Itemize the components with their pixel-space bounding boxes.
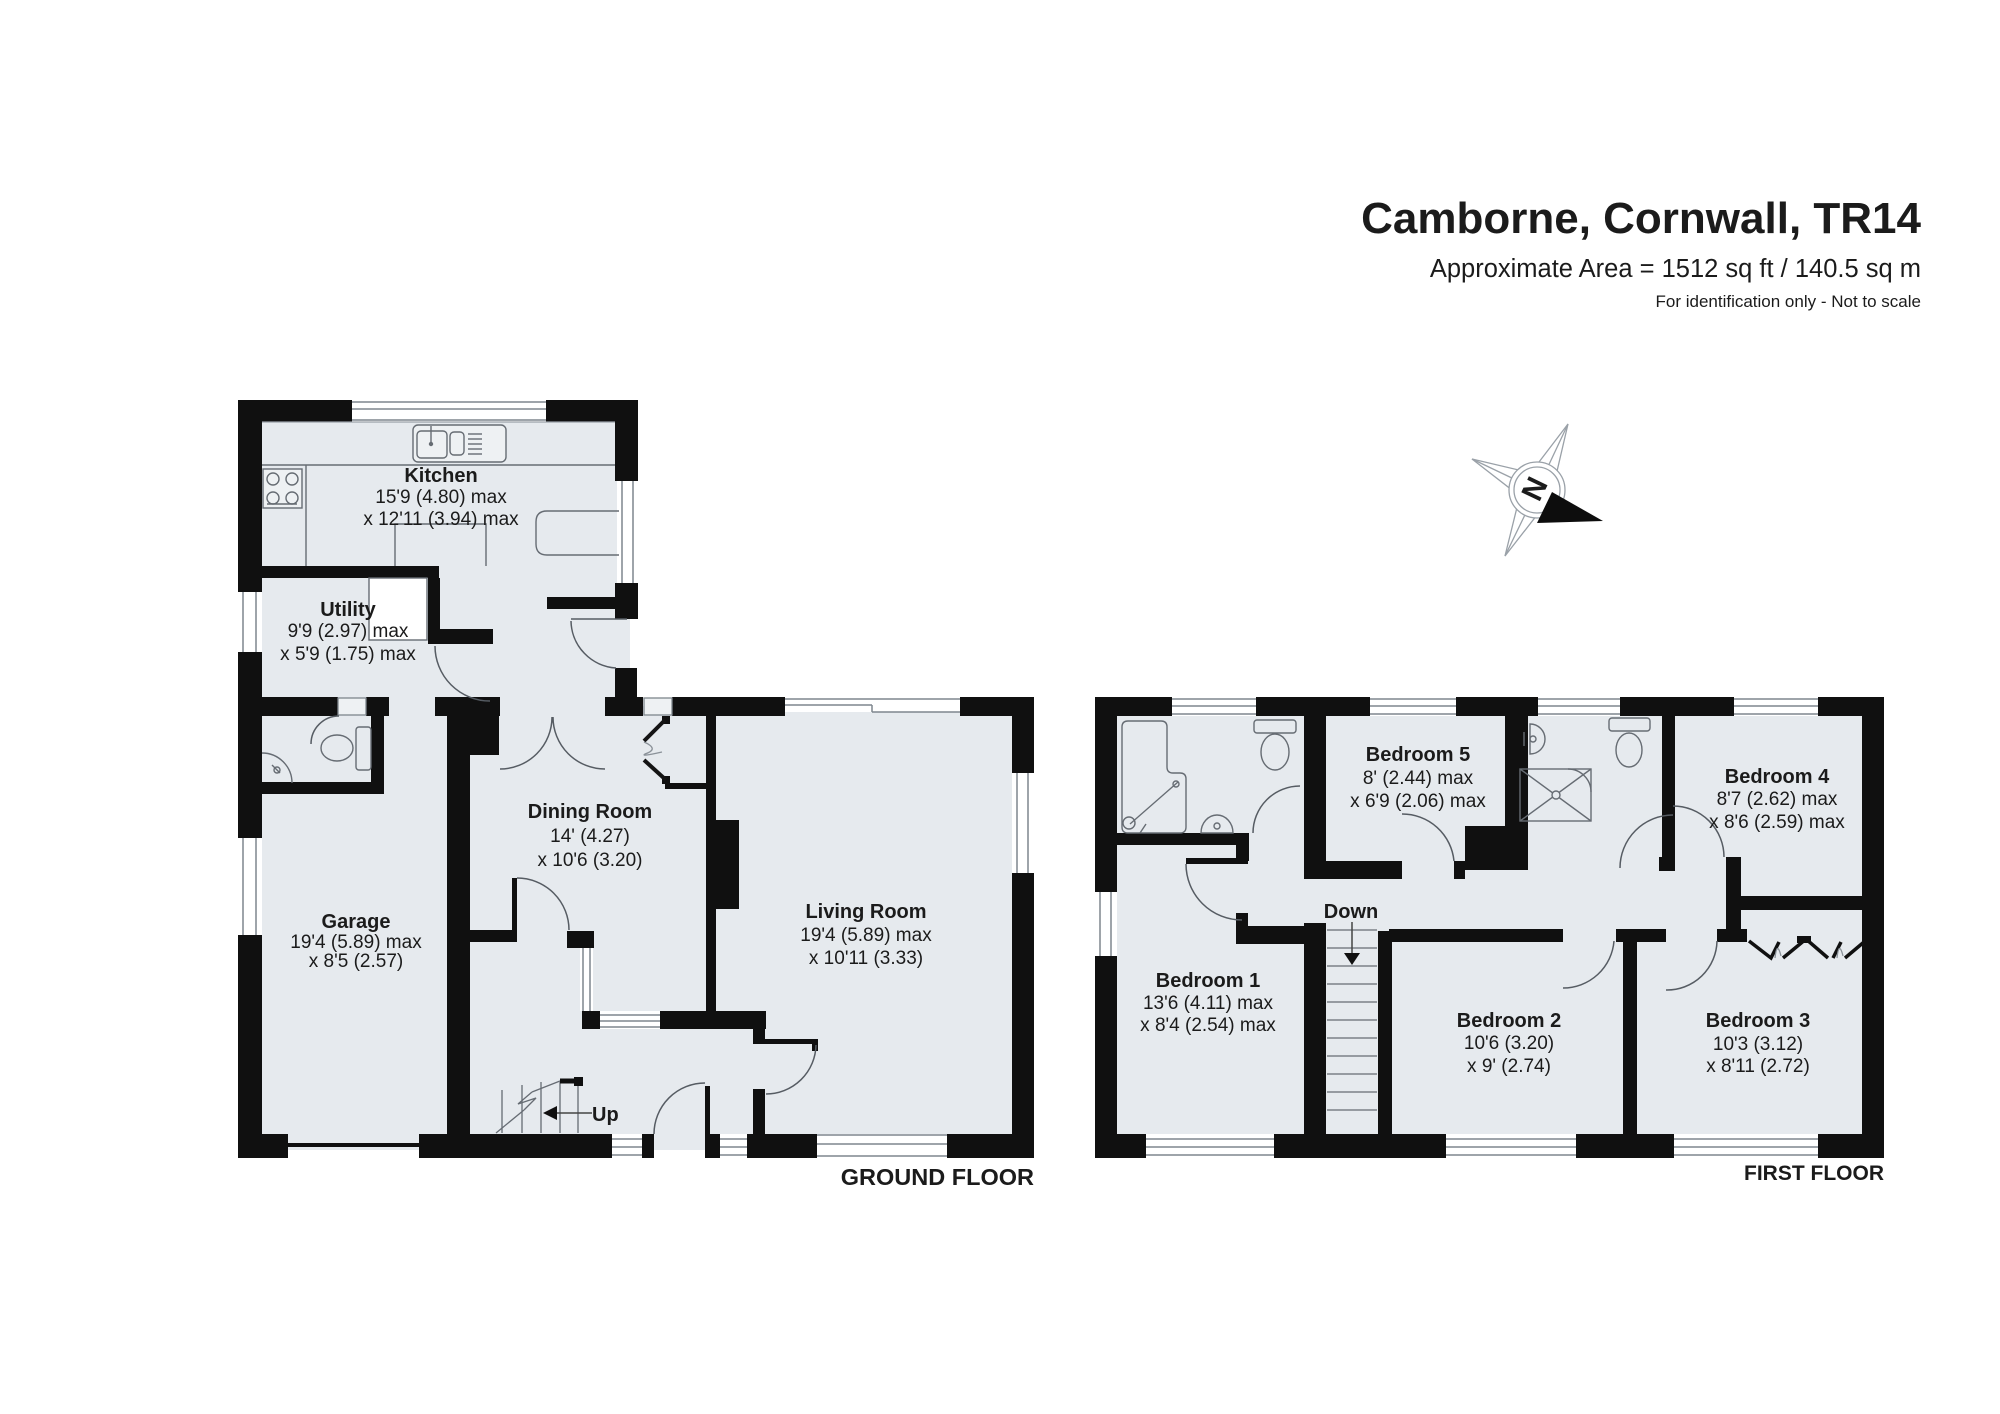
svg-text:10'6 (3.20): 10'6 (3.20): [1464, 1033, 1554, 1054]
svg-text:Bedroom 2: Bedroom 2: [1457, 1010, 1561, 1032]
svg-text:Bedroom 3: Bedroom 3: [1706, 1010, 1810, 1032]
svg-text:x 10'11 (3.33): x 10'11 (3.33): [809, 948, 923, 969]
svg-text:Bedroom 1: Bedroom 1: [1156, 970, 1260, 992]
svg-text:19'4 (5.89) max: 19'4 (5.89) max: [800, 925, 932, 946]
svg-text:Up: Up: [592, 1104, 619, 1126]
svg-text:x 6'9 (2.06) max: x 6'9 (2.06) max: [1350, 791, 1486, 812]
svg-text:Bedroom 4: Bedroom 4: [1725, 766, 1830, 788]
svg-text:x 8'5 (2.57): x 8'5 (2.57): [309, 951, 403, 972]
svg-text:Bedroom 5: Bedroom 5: [1366, 744, 1470, 766]
svg-text:19'4 (5.89) max: 19'4 (5.89) max: [290, 932, 422, 953]
svg-text:Approximate Area = 1512 sq ft: Approximate Area = 1512 sq ft / 140.5 sq…: [1430, 255, 1921, 283]
svg-text:9'9 (2.97) max: 9'9 (2.97) max: [288, 621, 409, 642]
svg-text:8'7 (2.62) max: 8'7 (2.62) max: [1717, 789, 1838, 810]
svg-text:8' (2.44) max: 8' (2.44) max: [1363, 768, 1474, 789]
svg-text:Down: Down: [1324, 901, 1378, 923]
svg-text:Camborne, Cornwall, TR14: Camborne, Cornwall, TR14: [1361, 194, 1921, 243]
svg-text:15'9 (4.80) max: 15'9 (4.80) max: [375, 487, 507, 508]
svg-text:x 12'11 (3.94) max: x 12'11 (3.94) max: [363, 509, 519, 530]
svg-text:Utility: Utility: [320, 599, 376, 621]
svg-text:14' (4.27): 14' (4.27): [550, 826, 630, 847]
svg-text:x 8'11 (2.72): x 8'11 (2.72): [1706, 1056, 1810, 1077]
svg-text:For identification only - Not: For identification only - Not to scale: [1655, 292, 1921, 311]
svg-text:x 9' (2.74): x 9' (2.74): [1467, 1056, 1551, 1077]
svg-text:x 8'4 (2.54) max: x 8'4 (2.54) max: [1140, 1015, 1276, 1036]
svg-text:Dining Room: Dining Room: [528, 801, 652, 823]
svg-text:Garage: Garage: [322, 911, 391, 933]
svg-text:x 8'6 (2.59) max: x 8'6 (2.59) max: [1709, 812, 1845, 833]
svg-text:13'6 (4.11) max: 13'6 (4.11) max: [1143, 993, 1274, 1014]
svg-text:FIRST FLOOR: FIRST FLOOR: [1744, 1162, 1884, 1185]
svg-text:x 5'9 (1.75) max: x 5'9 (1.75) max: [280, 644, 416, 665]
svg-text:Kitchen: Kitchen: [404, 465, 477, 487]
svg-text:GROUND FLOOR: GROUND FLOOR: [841, 1164, 1034, 1190]
svg-text:10'3 (3.12): 10'3 (3.12): [1713, 1034, 1803, 1055]
svg-text:x 10'6 (3.20): x 10'6 (3.20): [537, 850, 642, 871]
svg-text:Living Room: Living Room: [805, 901, 926, 923]
